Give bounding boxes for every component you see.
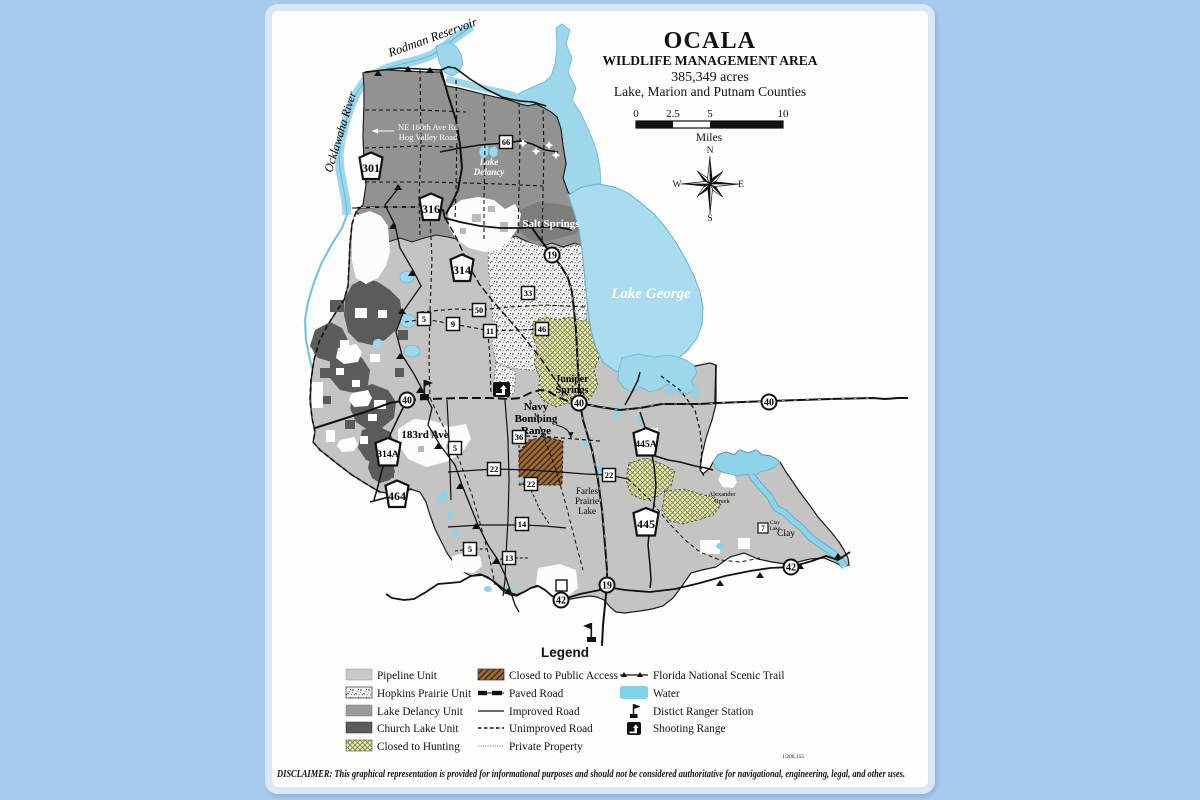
svg-text:Springs: Springs xyxy=(556,385,589,396)
svg-text:Paved Road: Paved Road xyxy=(509,688,564,700)
svg-text:NE 160th Ave Rd: NE 160th Ave Rd xyxy=(398,122,459,132)
svg-text:Pipeline Unit: Pipeline Unit xyxy=(377,670,438,682)
svg-text:50: 50 xyxy=(475,305,484,315)
svg-text:Closed to Hunting: Closed to Hunting xyxy=(377,741,460,753)
svg-text:33: 33 xyxy=(524,288,533,298)
svg-text:11: 11 xyxy=(486,326,494,336)
svg-text:Lake: Lake xyxy=(479,157,499,167)
svg-text:183rd Ave: 183rd Ave xyxy=(401,429,448,441)
svg-text:Improved Road: Improved Road xyxy=(509,706,580,718)
svg-text:Distict Ranger Station: Distict Ranger Station xyxy=(653,706,754,718)
svg-text:316: 316 xyxy=(422,202,440,216)
svg-text:0: 0 xyxy=(633,108,639,120)
svg-text:Miles: Miles xyxy=(696,132,723,144)
svg-text:Creek: Creek xyxy=(714,498,730,505)
svg-text:9: 9 xyxy=(451,319,455,329)
svg-text:445A: 445A xyxy=(635,439,657,450)
svg-text:14: 14 xyxy=(518,519,527,529)
svg-text:Church Lake Unit: Church Lake Unit xyxy=(377,723,459,735)
svg-text:Juniper: Juniper xyxy=(555,374,589,385)
svg-text:N: N xyxy=(707,146,714,156)
svg-text:314: 314 xyxy=(453,263,471,277)
svg-text:WILDLIFE MANAGEMENT AREA: WILDLIFE MANAGEMENT AREA xyxy=(602,53,817,68)
svg-text:22: 22 xyxy=(527,479,536,489)
svg-text:Unimproved Road: Unimproved Road xyxy=(509,723,593,735)
svg-text:42: 42 xyxy=(556,596,566,607)
svg-text:13: 13 xyxy=(505,553,514,563)
svg-text:66: 66 xyxy=(502,137,511,147)
svg-text:445: 445 xyxy=(637,517,655,531)
svg-text:Legend: Legend xyxy=(541,645,589,660)
svg-text:5: 5 xyxy=(468,544,472,554)
svg-text:S: S xyxy=(707,214,712,224)
svg-text:2.5: 2.5 xyxy=(666,108,680,120)
svg-text:Bombing: Bombing xyxy=(515,413,558,425)
svg-text:40: 40 xyxy=(402,396,412,407)
svg-text:Shooting Range: Shooting Range xyxy=(653,723,726,735)
svg-text:Hog Valley Road: Hog Valley Road xyxy=(399,132,458,142)
svg-text:385,349 acres: 385,349 acres xyxy=(671,70,749,85)
svg-text:Water: Water xyxy=(653,688,680,700)
svg-text:46: 46 xyxy=(538,324,547,334)
svg-text:301: 301 xyxy=(362,161,380,175)
svg-text:42: 42 xyxy=(786,563,796,574)
svg-text:Prairie: Prairie xyxy=(575,496,599,506)
svg-text:7: 7 xyxy=(761,525,765,533)
svg-text:Salt Springs: Salt Springs xyxy=(522,218,580,230)
svg-text:Delancy: Delancy xyxy=(473,167,505,177)
svg-text:DISCLAIMER: This graphical rep: DISCLAIMER: This graphical representatio… xyxy=(276,769,905,780)
svg-text:Lake: Lake xyxy=(578,506,596,516)
svg-text:5: 5 xyxy=(422,314,426,324)
svg-text:Farles: Farles xyxy=(576,486,598,496)
svg-text:Hopkins Prairie Unit: Hopkins Prairie Unit xyxy=(377,688,472,700)
svg-text:Lake Delancy Unit: Lake Delancy Unit xyxy=(377,706,464,718)
svg-text:Clay: Clay xyxy=(777,529,795,539)
svg-text:1:200,155: 1:200,155 xyxy=(782,754,804,760)
svg-text:Closed to Public Access: Closed to Public Access xyxy=(509,670,618,682)
svg-text:Lake George: Lake George xyxy=(610,286,691,302)
svg-text:W: W xyxy=(673,180,682,190)
svg-text:22: 22 xyxy=(605,470,614,480)
svg-text:10: 10 xyxy=(778,108,790,120)
svg-text:5: 5 xyxy=(453,443,457,453)
svg-text:19: 19 xyxy=(602,581,612,592)
svg-text:19: 19 xyxy=(547,251,557,262)
svg-text:5: 5 xyxy=(707,108,713,120)
svg-text:22: 22 xyxy=(490,464,499,474)
svg-text:Lake, Marion and Putnam Counti: Lake, Marion and Putnam Counties xyxy=(614,84,806,99)
svg-text:Florida National Scenic Trail: Florida National Scenic Trail xyxy=(653,670,784,682)
svg-text:OCALA: OCALA xyxy=(664,28,757,54)
svg-text:464: 464 xyxy=(388,489,406,503)
svg-text:Alexander: Alexander xyxy=(708,491,736,498)
svg-text:314A: 314A xyxy=(377,449,399,460)
svg-text:40: 40 xyxy=(574,399,584,410)
svg-text:E: E xyxy=(738,180,744,190)
svg-text:Private Property: Private Property xyxy=(509,741,583,753)
svg-text:Navy: Navy xyxy=(524,401,549,413)
svg-text:40: 40 xyxy=(764,398,774,409)
svg-text:36: 36 xyxy=(515,432,524,442)
